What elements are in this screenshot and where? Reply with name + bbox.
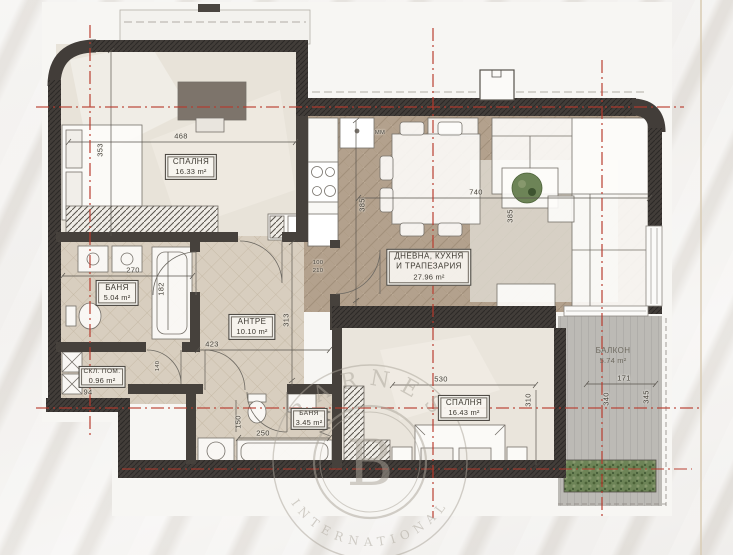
room-area: 5.04 m²: [104, 293, 131, 303]
sink1: [78, 246, 108, 272]
chair: [438, 122, 462, 135]
room-area: 10.10 m²: [236, 327, 267, 337]
dim-340: 340: [602, 392, 611, 405]
room-area: 27.96 m²: [394, 273, 463, 283]
dim-door-width: 100: [313, 260, 324, 266]
chair: [438, 223, 462, 236]
room-name: АНТРЕ: [238, 317, 267, 326]
room-name: СПАЛНЯ: [173, 157, 209, 166]
dim-345: 345: [642, 390, 651, 403]
dim-182: 182: [157, 282, 166, 295]
wardrobe1: [66, 206, 218, 234]
room-name: БАНЯ: [105, 283, 129, 292]
label-bedroom2: СПАЛНЯ 16.43 m²: [438, 395, 490, 421]
label-hall: АНТРЕ 10.10 m²: [228, 314, 275, 340]
dim-94: 94: [84, 388, 93, 397]
desk-chair: [196, 118, 224, 132]
chimney: [480, 70, 514, 100]
label-balcony: БАЛКОН 5.74 m²: [589, 344, 638, 368]
label-bedroom1: СПАЛНЯ 16.33 m²: [165, 154, 217, 180]
dim-385a: 385: [358, 198, 367, 211]
room-name: И ТРАПЕЗАРИЯ: [396, 262, 462, 271]
plant: [512, 173, 542, 203]
room-area: 16.43 m²: [446, 408, 482, 418]
dim-250: 250: [256, 429, 269, 438]
side-table: [548, 196, 574, 222]
chair: [380, 156, 393, 180]
dim-740: 740: [469, 188, 482, 197]
room-area: 5.74 m²: [596, 356, 631, 366]
dining-table: [392, 134, 480, 224]
dim-washing-machine: ММ: [375, 130, 385, 136]
room-area: 3.45 m²: [296, 418, 323, 428]
dim-310: 310: [524, 393, 533, 406]
floor-plan-stage: B BARNES INTERNATIONAL СПАЛНЯ 16.33 m² Б…: [0, 0, 733, 555]
room-name: СКЛ. ПОМ.: [84, 368, 121, 375]
room-area: 0.96 m²: [84, 376, 121, 386]
toilet1-tank: [66, 306, 76, 326]
toilet2: [248, 401, 266, 423]
room-name: СПАЛНЯ: [446, 398, 482, 407]
stove: [308, 162, 338, 202]
dim-313: 313: [282, 313, 291, 326]
living-window: [646, 226, 662, 306]
dim-270: 270: [126, 266, 139, 275]
room-name: БАНЯ: [299, 410, 318, 417]
room-name: БАЛКОН: [596, 346, 631, 355]
tv-console: [497, 284, 555, 307]
dim-door-height: 210: [313, 268, 324, 274]
dim-530: 530: [434, 375, 447, 384]
chair: [400, 223, 424, 236]
label-storage: СКЛ. ПОМ. 0.96 m²: [79, 366, 126, 388]
watermark-monogram: B: [346, 427, 393, 501]
label-living: ДНЕВНА, КУХНЯ И ТРАПЕЗАРИЯ 27.96 m²: [386, 249, 471, 286]
dim-171: 171: [617, 374, 630, 383]
dim-150: 150: [234, 415, 243, 428]
desk: [178, 82, 246, 120]
chair: [380, 188, 393, 212]
dim-385b: 385: [506, 209, 515, 222]
dim-468: 468: [174, 132, 187, 141]
label-bath2: БАНЯ 3.45 m²: [291, 408, 328, 430]
dim-423: 423: [205, 340, 218, 349]
floor-plan-canvas: B BARNES INTERNATIONAL: [0, 0, 733, 555]
label-bath1: БАНЯ 5.04 m²: [96, 280, 139, 306]
dim-353: 353: [96, 143, 105, 156]
planter: [564, 460, 656, 492]
room-area: 16.33 m²: [173, 167, 209, 177]
sofa-chaise: [572, 118, 648, 308]
chair: [400, 122, 424, 135]
dim-140: 140: [155, 361, 161, 372]
room-name: ДНЕВНА, КУХНЯ: [394, 252, 463, 261]
